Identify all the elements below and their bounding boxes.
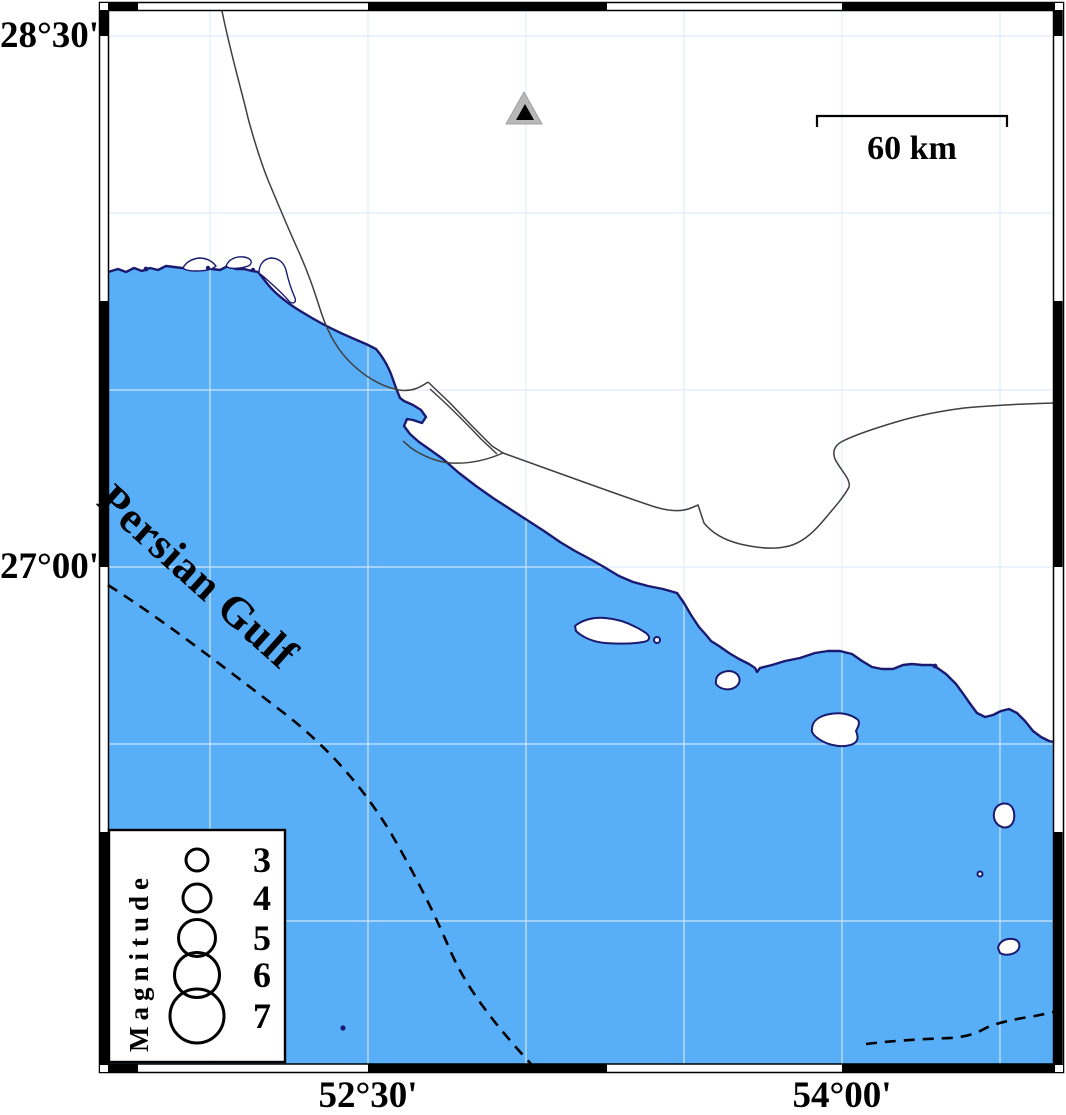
map-figure: 28°30' 27°00' 52°30' 54°00' 60 km Persia… [0,0,1066,1115]
lon-label-54-00: 54°00' [762,1074,922,1115]
station-triangle-icon [506,92,542,124]
legend-value-6: 6 [240,954,284,996]
legend-value-5: 5 [240,917,284,959]
legend-value-3: 3 [240,839,284,881]
legend-value-4: 4 [240,877,284,919]
scale-bar [817,116,1007,127]
legend-value-7: 7 [240,995,284,1037]
lat-label-27-00: 27°00' [0,545,96,589]
lat-label-28-30: 28°30' [0,14,96,58]
legend-title: Magnitude [124,872,155,1052]
lon-label-52-30: 52°30' [288,1074,448,1115]
scale-bar-label: 60 km [822,129,1002,169]
